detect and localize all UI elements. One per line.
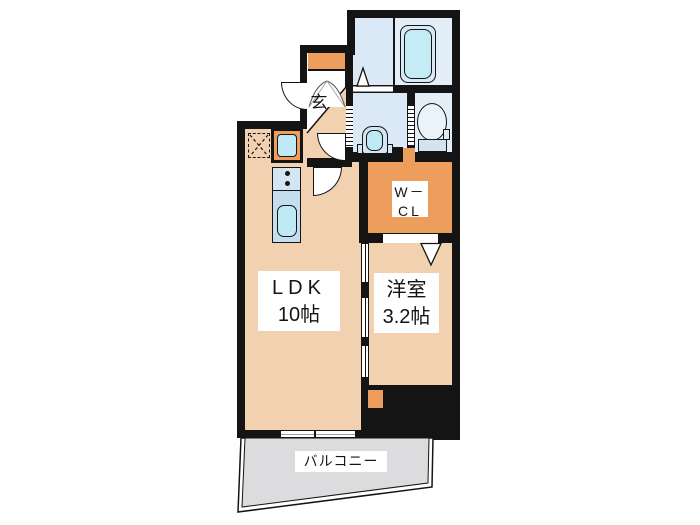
balcony-window: [315, 430, 356, 438]
washroom-door-jamb: [346, 106, 353, 147]
entrance-label: 玄: [308, 88, 330, 110]
wall-divider-node: [361, 338, 369, 345]
balcony-inner: [242, 438, 429, 507]
ldk-name: LDK: [258, 275, 340, 302]
balcony: [238, 438, 433, 512]
window-line: [316, 434, 355, 435]
toilet-tank-knob: [443, 129, 450, 140]
sliding-door-panel: [361, 345, 369, 378]
wcl-line1: W－: [392, 183, 428, 202]
floorplan: LDK 10帖 洋室 3.2帖 W－ CL 玄 バルコニー: [0, 0, 700, 525]
panel-line: [365, 298, 366, 337]
panel-line: [365, 346, 366, 377]
bathtub-inner: [404, 29, 432, 79]
wall-bath-top: [347, 10, 460, 18]
western-room-name: 洋室: [374, 277, 439, 304]
wcl-label: W－ CL: [392, 181, 428, 217]
sliding-door-panel: [361, 297, 369, 338]
wcl-door-gap: [383, 234, 438, 243]
panel-line: [365, 244, 366, 282]
wall-washroom-step: [392, 147, 403, 159]
entry-door-arc: [281, 82, 307, 110]
toilet-base: [418, 139, 447, 152]
ldk-size: 10帖: [258, 302, 340, 329]
wall-right: [452, 10, 460, 440]
balcony-window: [280, 430, 315, 438]
pipe-space-block: [368, 390, 383, 408]
wall-entrance-top: [300, 45, 353, 53]
toilet-door-jamb: [408, 106, 414, 146]
wcl-line2: CL: [392, 202, 428, 221]
ldk-label: LDK 10帖: [258, 271, 340, 331]
gas-burner-dot: [285, 171, 290, 176]
balcony-label: バルコニー: [295, 451, 387, 472]
washbasin-bowl: [366, 130, 383, 151]
refrigerator-space: [248, 133, 270, 158]
wall-hall-stub: [307, 158, 352, 167]
wall-bath-left: [347, 10, 355, 55]
wall-ldk-bottom-left: [237, 430, 280, 438]
sliding-door-panel: [361, 243, 369, 283]
wall-wcl-left: [359, 162, 368, 243]
wall-left: [237, 121, 245, 438]
kitchen-sink: [277, 205, 297, 237]
entrance-mat: [308, 53, 346, 71]
bathroom-door-gap: [353, 86, 393, 92]
western-room-size: 3.2帖: [374, 304, 439, 331]
washing-machine-pan: [277, 134, 297, 157]
wall-ldk-bottom-mid: [356, 430, 363, 438]
wall-divider-node: [361, 283, 369, 297]
western-room-label: 洋室 3.2帖: [374, 273, 439, 333]
gas-burner-dot: [285, 181, 290, 186]
bathroom-partition-line: [393, 17, 395, 86]
orange-service-patch: [403, 148, 415, 162]
window-line: [281, 434, 314, 435]
